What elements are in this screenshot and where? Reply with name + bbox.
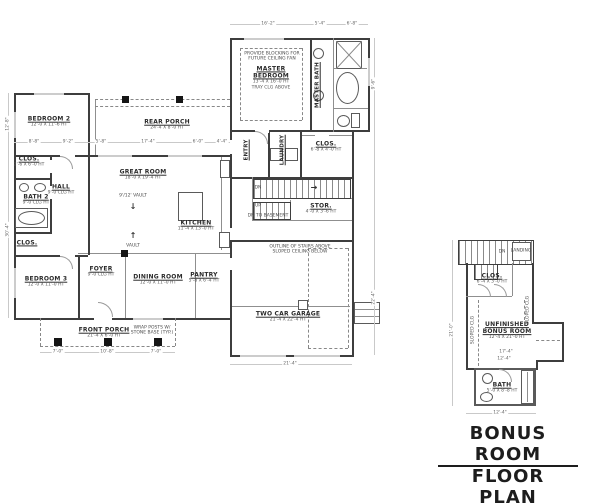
stairs-basement [253,202,291,220]
kitchen-island [178,192,203,221]
tray-ceiling-outline [240,48,302,49]
label-bedroom-3: BEDROOM 312'-0 X 11'-0 HT [25,276,68,289]
porch-post [122,96,129,103]
wall-segment [95,99,96,155]
dimension-text: 6'-0" [192,140,205,145]
dimension-text: 12'-8" [6,116,11,132]
structural-post [121,250,128,257]
label-foyer: FOYER9'-0 CLG HT [88,266,115,279]
wall-segment [14,178,50,180]
label-closet-2: CLOS. [17,239,38,246]
floor-plan-image: BEDROOM 212'-0 X 11'-6 HTREAR PORCH24'-4… [0,0,600,503]
porch-edge [40,346,175,347]
dimension-text: 9'-2" [62,140,75,145]
wall-segment [88,93,90,255]
wall-segment [78,253,230,254]
dimension-text: 21'-4" [282,362,298,367]
stairs-main [253,179,351,199]
porch-edge [40,318,41,346]
sink [313,90,324,101]
label-porch-post-note: WRAP POSTS W/ STONE BASE (TYP.) [131,326,174,337]
sink [482,373,493,384]
shower-line [527,372,528,402]
label-sloped-clg-right: SLOPED CLG [525,296,530,324]
dimension-text: 12'-4" [496,357,512,362]
wall-segment [300,130,302,177]
wall-segment [466,263,468,370]
wall-segment [230,240,352,242]
label-master-closet: CLOS.6'-8 X 4'-0 HT [311,141,342,154]
toilet [480,392,493,402]
bathtub-basin [18,211,45,225]
porch-screen-line [95,106,230,107]
door-swing [494,284,507,297]
wall-segment [14,255,88,257]
window [367,58,371,86]
wall-segment [562,322,564,362]
window [13,112,17,138]
label-sloped-clg-left: SLOPED CLG [470,316,475,344]
toilet [337,115,350,127]
label-ceiling-fan-note: PROVIDE BLOCKING FOR FUTURE CEILING FAN [244,52,299,63]
side-steps-line [355,309,379,310]
porch-post [104,338,112,346]
sloped-ceiling-line [524,300,525,320]
label-bedroom-2: BEDROOM 212'-0 X 11'-6 HT [28,116,71,129]
bonus-plan-title-line2: FLOOR PLAN [438,467,578,503]
bonus-plan-title-line1: BONUS ROOM [438,424,578,467]
label-vault-arrow-down: ↓ [130,202,137,212]
porch-post [54,338,62,346]
porch-post [176,96,183,103]
window [13,268,17,298]
dimension-text: 6'-8" [346,22,359,27]
wall-segment [532,322,564,324]
wall-segment [532,263,534,324]
stairs-above-outline [308,348,348,349]
stairs-above-outline [348,248,349,348]
dimension-text: 22'-4" [372,290,377,306]
side-steps-line [355,316,379,317]
sloped-ceiling-line [478,300,479,366]
freestanding-tub [336,72,359,104]
porch-post [154,338,162,346]
sink [313,48,324,59]
wall-segment [512,263,513,296]
window [34,92,64,96]
door-opening [50,160,53,173]
washer [270,148,283,161]
wall-segment [333,108,368,109]
door-swing [98,302,113,317]
label-kitchen: KITCHEN11'-4 X 13'-0 HT [178,220,214,233]
dimension-text: 7'-0" [52,350,65,355]
label-bath-2: BATH 29'-0 CLG HT [23,194,50,207]
dimension-text: 10'-8" [99,350,115,355]
label-storage: STOR.4'-0 X 3'-6 HT [306,203,337,216]
dimension-text: 9'-6" [372,78,377,91]
wall-segment [195,253,196,318]
toilet [34,183,46,192]
label-unfinished-bonus-room: UNFINISHED BONUS ROOM12'-4 X 21'-0 HT [483,321,532,341]
dimension-text: 17'-4" [498,350,514,355]
garage-door [240,354,286,358]
label-vault-arrow-up: ↑ [130,231,137,241]
dimension-text: 5'-4" [314,22,327,27]
window [133,317,163,321]
label-rear-porch: REAR PORCH24'-4 X 8'-0 HT [144,119,190,132]
label-dining-room: DINING ROOM12'-0 X 11'-0 HT [133,274,183,287]
label-master-bath: MASTER BATH [315,62,322,108]
dimension-text: 12'-4" [492,411,508,416]
label-master-bedroom: MASTER BEDROOM13'-4 X 16'-0 HT TRAY CLG … [252,65,291,90]
wall-segment [14,318,230,320]
dryer [285,148,298,161]
wall-segment [252,220,352,221]
dimension-text: 7'-0" [150,350,163,355]
wall-segment [78,255,80,318]
door-swing [478,284,491,297]
door-swing [60,156,73,169]
refrigerator [219,232,230,248]
door-swing [60,256,73,269]
shower [336,41,362,69]
door-opening [230,258,233,270]
wall-segment [310,38,312,132]
label-great-room: GREAT ROOM18'-0 X 19'-4 HT [120,169,167,182]
wall-segment [333,38,334,132]
label-closet-1: CLOS.2'-6 X 6'-0 HT [14,156,45,169]
wall-segment [536,360,538,370]
label-vault-note-lower: VAULT [126,243,140,248]
wall-segment [125,255,126,318]
door-opening [94,318,112,321]
garage-bay-line [232,306,350,307]
dimension-text: 4'-4" [216,140,229,145]
porch-screen-line [95,99,230,100]
wall-segment [230,130,368,132]
sloped-ceiling-line [536,340,560,341]
stairs-above-outline [308,248,309,348]
garage-door [294,354,340,358]
door-opening [315,135,329,138]
range [220,160,230,178]
wall-segment [536,360,564,362]
window [244,37,284,41]
tray-ceiling-outline [240,48,241,120]
bonus-plan-title: BONUS ROOM FLOOR PLAN [438,424,578,503]
sink [19,183,29,192]
dimension-text: 16'-2" [260,22,276,27]
wall-segment [14,232,50,234]
label-pantry: PANTRY5'-8 X 6'-4 HT [189,272,220,285]
tray-ceiling-outline [302,48,303,120]
dimension-text: 17'-4" [140,140,156,145]
stairs-above-outline [308,248,348,249]
garage-post-box [298,300,308,310]
tray-ceiling-outline [240,120,302,121]
label-garage-stairs-note: OUTLINE OF STAIRS ABOVE SLOPED CEILING B… [269,245,330,256]
porch-edge [175,318,176,346]
dimension-text: 21'-0" [450,322,455,338]
dimension-text: 5'-8" [95,140,108,145]
dimension-text: 8'-8" [28,140,41,145]
door-opening [50,186,53,199]
wall-segment [230,38,232,357]
bonus-stair-landing [512,242,531,261]
dimension-text: 30'-4" [6,222,11,238]
window [168,154,202,158]
label-two-car-garage: TWO CAR GARAGE21'-4 X 22'-4 HT [256,311,320,324]
label-entry: ENTRY [244,139,251,160]
bonus-lower-flight [474,264,498,280]
door-swing [255,131,268,144]
window [98,154,132,158]
toilet-tank [351,113,360,128]
label-vault-note-upper: 9'/12' VAULT [119,193,147,198]
